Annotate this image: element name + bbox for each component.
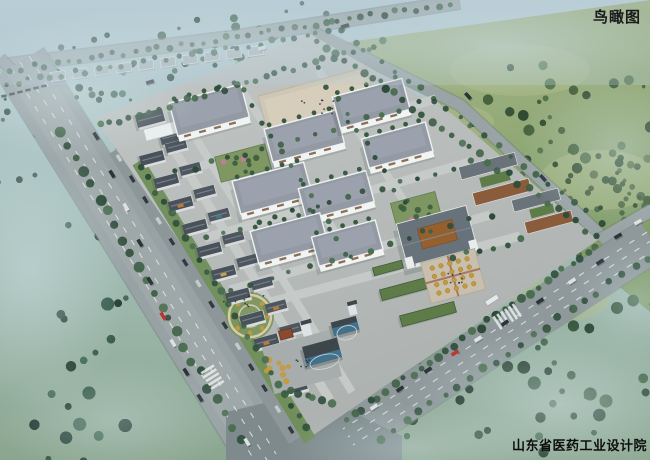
- design-institute-credit-label: 山东省医药工业设计院: [512, 440, 647, 454]
- aerial-render-screenshot: 鸟瞰图 山东省医药工业设计院: [0, 0, 650, 460]
- birdseye-rendering: [0, 0, 650, 460]
- view-title-label: 鸟瞰图: [593, 9, 641, 26]
